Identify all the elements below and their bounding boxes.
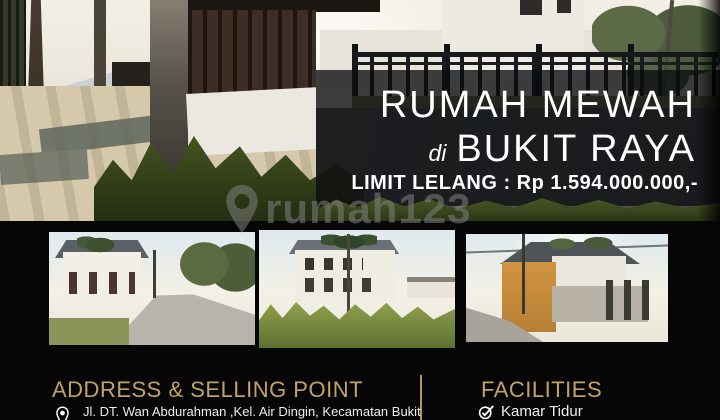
grass-verge: [49, 318, 129, 345]
facilities-section-title: FACILITIES: [481, 377, 602, 403]
location-name: BUKIT RAYA: [456, 128, 696, 171]
address-section-title: ADDRESS & SELLING POINT: [52, 377, 363, 403]
windows: [305, 278, 379, 292]
thumbnail-house-front: [259, 230, 455, 348]
fence-rail: [352, 52, 718, 57]
edge-vignette: [698, 0, 720, 221]
listing-flyer: RUMAH MEWAH di BUKIT RAYA LIMIT LELANG :…: [0, 0, 720, 420]
house: [295, 250, 395, 302]
listing-title-line1: RUMAH MEWAH: [380, 84, 696, 127]
thumbnail-house-side: [466, 234, 668, 342]
address-text: Jl. DT. Wan Abdurahman ,Kel. Air Dingin,…: [83, 404, 421, 419]
thumbnail-street-view: [49, 232, 255, 345]
paving-stone: [0, 149, 89, 185]
rumah123-watermark: rumah123: [224, 183, 471, 235]
window: [557, 0, 571, 13]
facility-label: Kamar Tidur: [501, 403, 583, 420]
fence-pillars: [606, 280, 658, 320]
map-pin-icon: [224, 183, 260, 235]
watermark-brand: rumah123: [265, 184, 471, 234]
palm-leaves: [77, 232, 123, 258]
windows: [69, 272, 135, 294]
utility-pole: [153, 250, 156, 298]
fence-rail: [352, 62, 718, 65]
location-pin-icon: [55, 406, 70, 420]
palm-leaves: [542, 234, 622, 252]
utility-pole: [522, 234, 525, 314]
paving-stone: [39, 115, 161, 155]
distant-houses: [407, 282, 455, 298]
windows: [305, 258, 363, 270]
utility-pole: [347, 234, 350, 318]
address-row: Jl. DT. Wan Abdurahman ,Kel. Air Dingin,…: [55, 404, 421, 420]
title-connector: di: [428, 140, 446, 167]
window: [520, 0, 542, 15]
listing-title-line2: di BUKIT RAYA: [428, 128, 696, 171]
plinth-wall: [186, 87, 331, 156]
facility-item: Kamar Tidur: [478, 403, 583, 420]
check-icon: [478, 404, 494, 420]
